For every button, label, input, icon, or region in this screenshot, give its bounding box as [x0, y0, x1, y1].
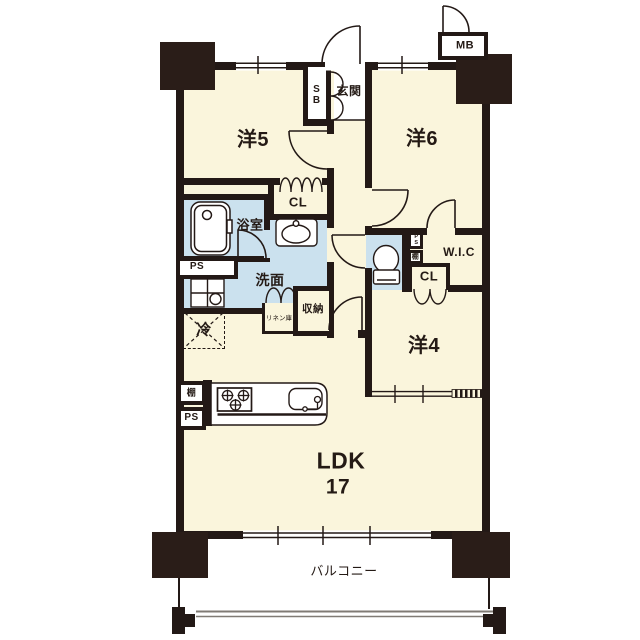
label-ps-kitchen: PS [184, 413, 198, 423]
toilet-icon [374, 246, 400, 285]
label-mb: MB [456, 41, 474, 52]
room-label-yo4: 洋4 [408, 336, 440, 356]
window-yo5-top [236, 56, 286, 74]
label-genkan: 玄関 [336, 85, 361, 97]
ldk-door [329, 297, 362, 330]
label-ps-bath: PS [190, 262, 204, 272]
yo6-door [372, 190, 408, 226]
balcony-railing [172, 578, 506, 634]
room-label-yo5: 洋5 [237, 130, 269, 150]
label-linen: リネン庫 [266, 316, 292, 323]
room-label-ldk-size: 17 [326, 477, 350, 498]
mb-door [443, 6, 469, 32]
railing-bracket-left [172, 607, 195, 634]
washing-machine-icon [191, 279, 224, 307]
label-shelf-kitchen: 棚 [187, 389, 197, 398]
washbasin-icon [276, 219, 317, 246]
kitchen-counter-icon [211, 383, 327, 425]
window-balcony-sliding [243, 526, 431, 545]
label-bathroom: 浴室 [236, 219, 263, 232]
label-balcony: バルコニー [310, 565, 377, 578]
toilet-door [332, 235, 365, 268]
yo5-door [289, 131, 327, 169]
label-cl-east: CL [420, 270, 438, 283]
room-label-ldk: LDK [317, 450, 366, 473]
floor-plan: 洋5 洋6 洋4 LDK 17 玄関 浴室 洗面 W.I.C バルコニー CL … [0, 0, 640, 640]
label-wic: W.I.C [443, 246, 475, 258]
label-shuno: 収納 [302, 304, 324, 315]
entrance-door [322, 26, 360, 64]
wic-door [427, 200, 455, 228]
linen-folding-doors [266, 288, 296, 303]
label-fridge: 冷 [196, 323, 212, 338]
window-yo6-top [378, 56, 428, 74]
bathtub-icon [191, 202, 232, 255]
label-cl-west: CL [289, 196, 307, 209]
cl-west-folding-doors [280, 178, 322, 192]
sliding-partition-yo4 [372, 385, 482, 403]
label-sb: SB [311, 84, 321, 106]
label-washroom: 洗面 [256, 273, 285, 287]
bathroom-door [238, 230, 266, 258]
label-ps-toilet: PS [413, 234, 419, 246]
room-label-yo6: 洋6 [406, 129, 438, 149]
label-shelf-toilet: 棚 [412, 253, 420, 260]
cl-east-folding-doors [414, 289, 446, 304]
